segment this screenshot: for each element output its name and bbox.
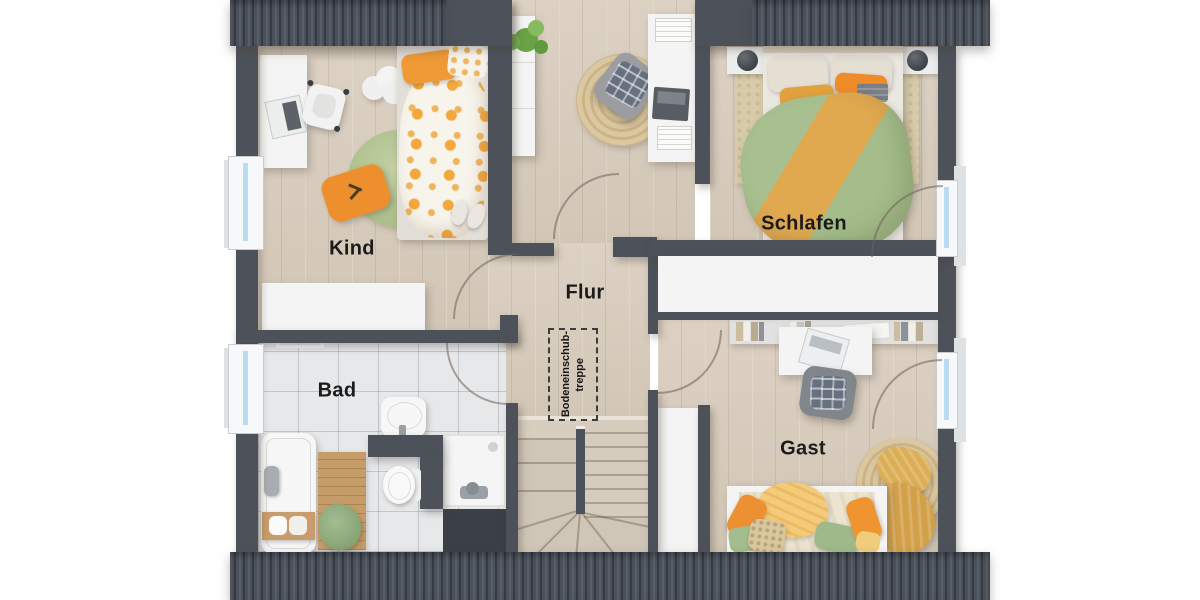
desk-books-top <box>655 18 692 42</box>
gast-window-glazing <box>944 359 949 420</box>
bad-tub-caddy <box>262 512 315 540</box>
gable-block-left <box>447 0 512 46</box>
towel-roll <box>289 516 307 535</box>
kind-laptop-icon <box>264 95 307 140</box>
wall-flur-gast-upper <box>648 243 658 334</box>
plaid-pillow <box>602 58 654 110</box>
book-spine <box>909 321 915 341</box>
wall-flur-gast-lower <box>648 390 658 552</box>
cushion-print <box>349 188 361 200</box>
laptop-keyboard <box>657 91 686 105</box>
bad-toilet <box>383 464 421 506</box>
loft-hatch-text-line1: Bodeneinschub- <box>560 331 573 417</box>
plant-leaves <box>534 40 548 54</box>
stairs-tall-cabinet <box>656 408 698 552</box>
bad-shower <box>443 434 506 507</box>
bad-washbasin <box>381 397 426 437</box>
toilet-seat <box>388 472 411 500</box>
kind-window-glazing <box>243 163 248 241</box>
gast-office-chair <box>798 364 858 421</box>
kind-chair-wheel <box>307 79 314 86</box>
loft-hatch-text-line2: treppe <box>574 358 587 392</box>
bad-dark-niche <box>443 509 506 552</box>
roof-hatch-top-left <box>230 0 447 46</box>
roof-hatch-bottom <box>230 552 990 600</box>
stairs-divider-wall <box>576 426 585 514</box>
kind-pillow-dotted <box>446 43 489 79</box>
gable-block-right <box>695 0 752 46</box>
book-spine <box>894 322 900 341</box>
room-label-gast: Gast <box>780 438 826 461</box>
plant-leaves <box>528 20 544 36</box>
divider-cap <box>576 426 585 429</box>
gast-pillow-knit <box>747 518 787 555</box>
room-label-flur: Flur <box>566 282 605 305</box>
loft-hatch-annotation: Bodeneinschub- treppe <box>548 328 598 421</box>
bad-tub-faucet <box>264 466 279 496</box>
book-spine <box>751 322 758 341</box>
flur-laptop-icon <box>652 87 690 121</box>
book-spine <box>901 322 908 341</box>
stairs-straight-run <box>584 420 650 518</box>
stairs-landing <box>517 420 584 440</box>
table-lamp-icon <box>907 50 928 71</box>
wall-exterior-right <box>938 46 956 552</box>
wardrobe-trim <box>658 312 938 320</box>
room-label-kind: Kind <box>329 238 375 261</box>
bad-partition-wall-v <box>420 455 443 509</box>
book-spine <box>916 322 923 341</box>
kind-laptop-screen <box>282 101 302 131</box>
shower-drain <box>488 442 498 452</box>
wall-exterior-left <box>236 45 258 552</box>
stair-winder-line <box>517 490 576 492</box>
kind-sideboard <box>262 283 425 330</box>
wall-kind-bad <box>236 330 517 343</box>
gast-pillow-yellow-small <box>854 530 881 554</box>
wall-bad-right <box>506 403 518 552</box>
floor-plan: Kind Schlafen Flur Bad Gast Bodeneinschu… <box>0 0 1200 600</box>
towel-roll <box>269 516 287 535</box>
roof-hatch-top-right <box>752 0 990 46</box>
book-spine <box>759 322 764 341</box>
kind-chair-seat <box>311 92 338 121</box>
stair-winder-line <box>517 462 576 464</box>
table-lamp-icon <box>737 50 758 71</box>
schlafen-built-in-wardrobe <box>658 256 938 312</box>
room-label-schlafen: Schlafen <box>761 213 847 236</box>
bad-window-glazing <box>243 351 248 425</box>
rail-bar <box>276 345 324 348</box>
wall-kind-door-jamb <box>500 315 518 343</box>
laptop-screen <box>809 335 843 354</box>
desk-books-bottom <box>657 126 692 150</box>
bad-partition-wall-h <box>368 435 443 457</box>
schlafen-window-glazing <box>944 187 949 248</box>
room-label-bad: Bad <box>318 380 357 403</box>
book-spine <box>736 322 743 341</box>
bad-towel-pile <box>319 504 361 550</box>
book-spine <box>744 321 750 341</box>
plaid-pillow <box>809 375 846 410</box>
shower-head <box>466 482 479 495</box>
wall-stair-block <box>698 405 710 552</box>
